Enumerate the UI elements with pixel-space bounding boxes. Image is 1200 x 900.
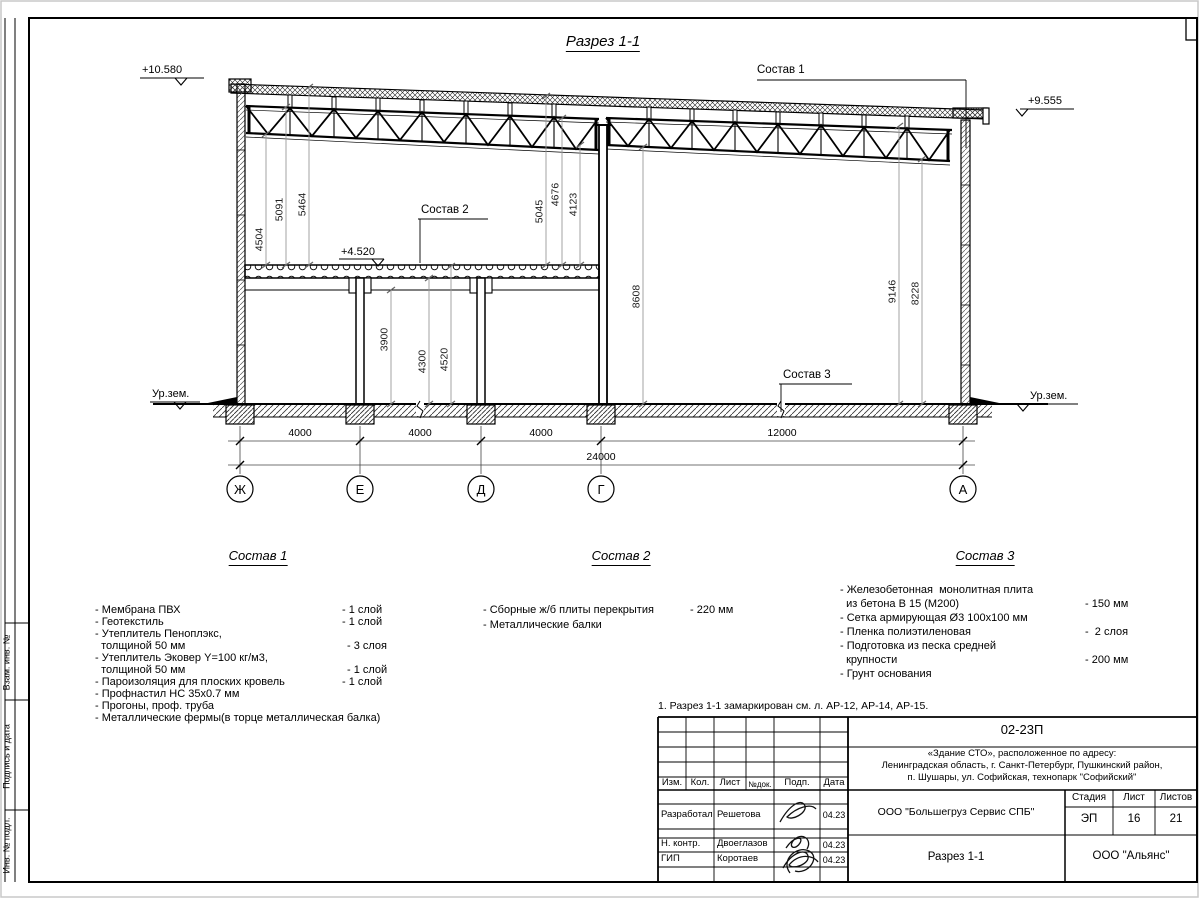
drawing-view-title: Разрез 1-1 [566,33,640,52]
tb-sheets-total: 21 [1170,813,1183,826]
dim-vertical: 5464 [297,165,312,245]
tb-drawing-title: Разрез 1-1 [928,851,984,864]
composition-value: - 1 слой [342,604,382,617]
elevation-roof-right: +9.555 [1028,95,1062,108]
composition-item: крупности [840,654,897,667]
callout-sostav-1: Состав 1 [757,64,805,77]
tb-company: ООО "Большегруз Сервис СПБ" [878,806,1035,818]
dim-vertical: 4520 [439,320,454,400]
composition-item: - Металлические фермы(в торце металличес… [95,712,380,725]
dim-vertical: 4123 [568,165,583,245]
axis-label: А [950,482,976,497]
callout-sostav-3: Состав 3 [783,369,831,382]
composition-item: - Подготовка из песка средней [840,640,996,653]
composition-value: - 2 слоя [1085,626,1128,639]
dim-span: 12000 [767,427,796,439]
column-E [356,278,364,404]
tb-stage-header: Стадия [1072,792,1106,804]
dim-vertical: 3900 [379,300,394,380]
elevation-slab: +4.520 [341,246,375,259]
dim-vertical: 9146 [887,252,902,332]
axis-label: Ж [227,482,253,497]
composition-item: - Сборные ж/б плиты перекрытия [483,604,654,617]
composition-item: - Пароизоляция для плоских кровель [95,676,285,689]
composition-value: - 1 слой [342,676,382,689]
composition-item: - Грунт основания [840,668,932,681]
tb-col-header: Изм. [662,778,682,789]
tb-col-header: №док. [748,780,771,789]
tb-date: 04.23 [823,840,846,850]
tb-sheet-number: 16 [1128,813,1141,826]
object-address-line: Ленинградская область, г. Санкт-Петербур… [882,761,1163,772]
axis-label: Г [588,482,614,497]
composition-item: - Железобетонная монолитная плита [840,584,1033,597]
composition-item: - Утеплитель Эковер Y=100 кг/м3, [95,652,268,665]
margin-label-vzam: Взам. инв. № [2,618,17,708]
tb-col-header: Подп. [784,778,809,789]
tb-col-header: Лист [720,778,741,789]
composition-item: - Утеплитель Пеноплэкс, [95,628,222,641]
column-D [477,278,485,404]
dim-span: 4000 [408,427,431,439]
dim-vertical: 8608 [631,257,646,337]
composition-item: толщиной 50 мм [95,640,185,653]
tb-col-header: Дата [823,778,844,789]
dim-total: 24000 [586,451,615,463]
tb-role: Разработал [661,810,713,821]
composition-value: - 220 мм [690,604,733,617]
tb-name: Коротаев [717,854,758,865]
composition-title: Состав 3 [956,549,1015,566]
composition-item: - Металлические балки [483,619,602,632]
composition-value: - 1 слой [347,664,387,677]
composition-item: толщиной 50 мм [95,664,185,677]
composition-item: из бетона В 15 (М200) [840,598,959,611]
dim-vertical: 5045 [534,172,549,252]
tb-name: Решетова [717,810,761,821]
tb-role: ГИП [661,854,680,865]
dim-vertical: 4676 [550,155,565,235]
composition-item: - Сетка армирующая Ø3 100х100 мм [840,612,1028,625]
composition-item: - Профнастил НС 35x0.7 мм [95,688,239,701]
dim-vertical: 4300 [417,322,432,402]
dim-span: 4000 [529,427,552,439]
elevation-roof-left: +10.580 [142,64,182,77]
object-address-line: п. Шушары, ул. Софийская, технопарк "Соф… [908,773,1137,784]
composition-value: - 150 мм [1085,598,1128,611]
composition-value: - 3 слоя [347,640,387,653]
drawing-sheet: Разрез 1-1 +10.580 +9.555 +4.520 Ур.зем.… [0,0,1200,900]
margin-label-podpis: Подпись и дата [2,712,17,802]
tb-date: 04.23 [823,855,846,865]
dim-vertical: 4504 [254,200,269,280]
dim-vertical: 8228 [910,254,925,334]
axis-label: Д [468,482,494,497]
composition-item: - Геотекстиль [95,616,164,629]
dim-vertical: 5091 [274,170,289,250]
tb-name: Двоеглазов [717,839,768,850]
composition-item: - Мембрана ПВХ [95,604,180,617]
tb-stage-header: Листов [1160,792,1193,804]
dim-span: 4000 [288,427,311,439]
composition-value: - 200 мм [1085,654,1128,667]
composition-item: - Прогоны, проф. труба [95,700,214,713]
composition-title: Состав 1 [229,549,288,566]
tb-org: ООО "Альянс" [1093,850,1170,863]
object-address-line: «Здание СТО», расположенное по адресу: [928,749,1117,760]
axis-label: Е [347,482,373,497]
tb-role: Н. контр. [661,839,700,850]
sheet-note: 1. Разрез 1-1 замаркирован см. л. АР-12,… [658,700,928,712]
ground-level-label-left: Ур.зем. [152,388,189,401]
composition-item: - Пленка полиэтиленовая [840,626,971,639]
composition-title: Состав 2 [592,549,651,566]
composition-value: - 1 слой [342,616,382,629]
callout-sostav-2: Состав 2 [421,204,469,217]
middle-column [599,125,607,404]
margin-label-inv: Инв. № подл. [2,801,17,891]
doc-number: 02-23П [1001,723,1044,738]
tb-date: 04.23 [823,810,846,820]
ground-level-label-right: Ур.зем. [1030,390,1067,403]
tb-col-header: Кол. [691,778,710,789]
tb-stage-header: Лист [1123,792,1145,804]
tb-stage-value: ЭП [1081,813,1098,826]
